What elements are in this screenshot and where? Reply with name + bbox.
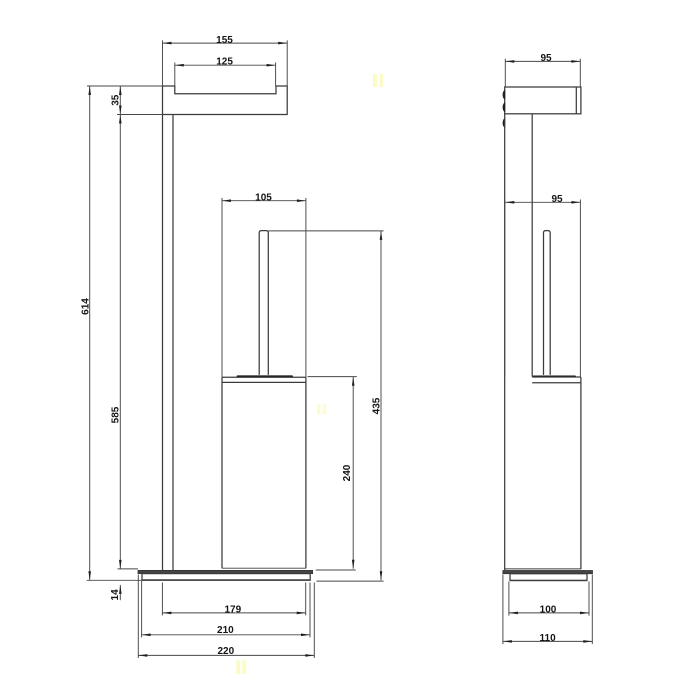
svg-text:585: 585 bbox=[110, 406, 121, 423]
svg-text:179: 179 bbox=[224, 604, 241, 615]
svg-text:110: 110 bbox=[540, 633, 557, 644]
svg-text:614: 614 bbox=[80, 298, 91, 315]
svg-text:435: 435 bbox=[371, 397, 382, 414]
svg-text:155: 155 bbox=[216, 35, 233, 46]
svg-text:105: 105 bbox=[255, 192, 272, 203]
svg-text:95: 95 bbox=[540, 53, 552, 64]
svg-text:220: 220 bbox=[217, 646, 234, 657]
svg-text:100: 100 bbox=[540, 604, 557, 615]
svg-text:14: 14 bbox=[110, 589, 121, 601]
svg-text:240: 240 bbox=[342, 464, 353, 481]
svg-text:210: 210 bbox=[217, 625, 234, 636]
svg-text:95: 95 bbox=[551, 194, 563, 205]
svg-text:35: 35 bbox=[111, 94, 122, 106]
svg-text:125: 125 bbox=[216, 57, 233, 68]
